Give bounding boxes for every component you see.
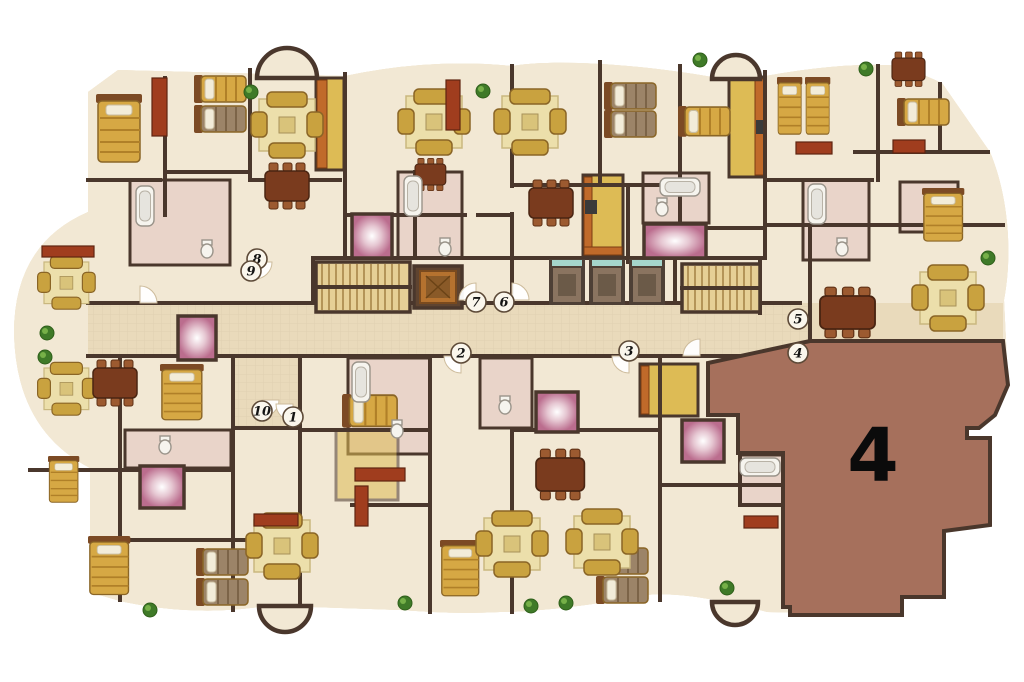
svg-text:7: 7 (471, 296, 480, 311)
unit-marker-1[interactable]: 1 (283, 407, 303, 427)
unit-marker-5[interactable]: 5 (788, 309, 808, 329)
svg-text:6: 6 (499, 296, 508, 311)
service-elevator (414, 266, 462, 308)
unit-marker-6[interactable]: 6 (494, 292, 514, 312)
unit-marker-4[interactable]: 4 (788, 343, 808, 363)
svg-text:3: 3 (624, 345, 633, 360)
svg-text:9: 9 (246, 265, 255, 280)
unit-marker-7[interactable]: 7 (466, 292, 486, 312)
svg-text:4: 4 (793, 347, 802, 362)
floor-plan-page: 4 12345678910 (0, 0, 1024, 682)
unit-marker-9[interactable]: 9 (241, 261, 261, 281)
unit-4-label: 4 (847, 413, 899, 499)
unit-marker-3[interactable]: 3 (619, 341, 639, 361)
svg-text:5: 5 (793, 313, 802, 328)
svg-text:2: 2 (455, 347, 465, 362)
unit-marker-10[interactable]: 10 (252, 401, 272, 421)
unit-marker-2[interactable]: 2 (451, 343, 471, 363)
svg-text:10: 10 (253, 405, 271, 420)
floor-plan: 4 12345678910 (0, 0, 1024, 682)
svg-text:1: 1 (288, 411, 297, 426)
